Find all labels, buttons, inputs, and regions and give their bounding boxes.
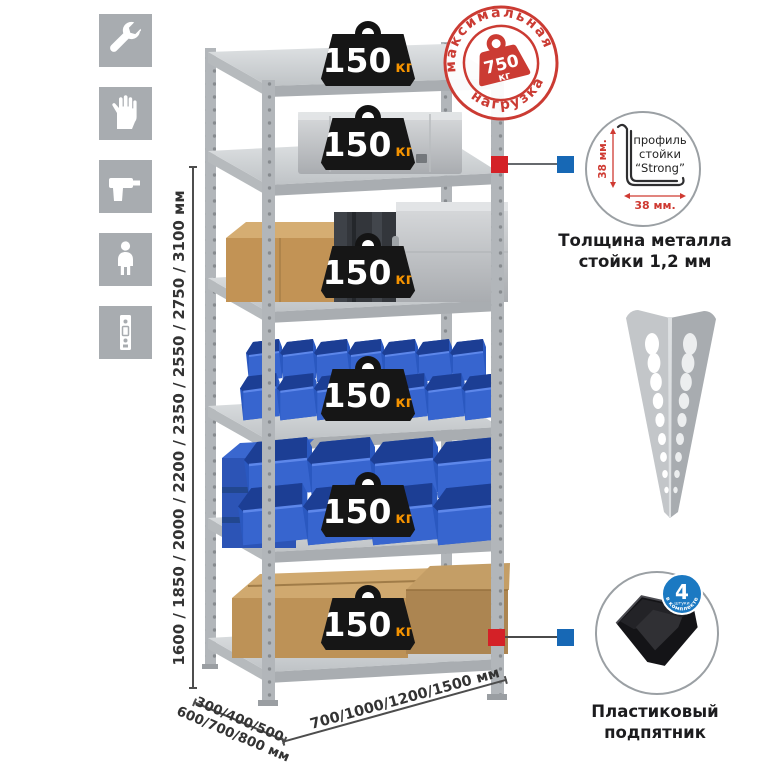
- post-profile-detail: 38 мм. 38 мм. профиль стойки “Strong”: [585, 111, 701, 227]
- height-dimension-label: 1600 / 1850 / 2000 / 2200 / 2350 / 2550 …: [170, 163, 188, 693]
- top-callout-line: [500, 163, 560, 165]
- wrench-tile: [99, 14, 152, 67]
- profile-label-1: профиль: [633, 133, 687, 147]
- drill-icon: [99, 160, 152, 213]
- shelf-load-weight-3: 150кг: [320, 233, 416, 298]
- badge-number: 4: [675, 580, 689, 604]
- top-callout-marker-blue: [557, 156, 574, 173]
- profile-label-2: стойки: [639, 147, 681, 161]
- top-post-marker-red: [491, 156, 508, 173]
- profile-caption: Толщина металла стойки 1,2 мм: [558, 231, 732, 272]
- shelf-load-weight-5: 150кг: [320, 472, 416, 537]
- bottom-post-marker-red: [488, 629, 505, 646]
- product-infographic: 1600 / 1850 / 2000 / 2200 / 2350 / 2550 …: [0, 0, 765, 765]
- gloves-tile: [99, 87, 152, 140]
- post-tile: [99, 306, 152, 359]
- post-profile-drawing: 38 мм. 38 мм. профиль стойки “Strong”: [587, 113, 699, 225]
- gloves-icon: [99, 87, 152, 140]
- person-icon: [99, 233, 152, 286]
- quantity-badge: 4 штуки в комплекте: [660, 572, 704, 616]
- drill-tile: [99, 160, 152, 213]
- shelf-load-weight-6: 150кг: [320, 585, 416, 650]
- person-tile: [99, 233, 152, 286]
- profile-dim-horizontal: 38 мм.: [634, 199, 675, 212]
- shelf-load-weight-2: 150кг: [320, 105, 416, 170]
- height-dimension-line: [192, 166, 194, 689]
- shelf-load-weight-1: 150кг: [320, 21, 416, 86]
- perforated-post-icon: [99, 306, 152, 359]
- profile-dim-vertical: 38 мм.: [597, 139, 609, 178]
- perforated-corner-post-image: [600, 302, 740, 530]
- wrench-icon: [99, 14, 152, 67]
- foot-caption: Пластиковый подпятник: [572, 702, 738, 743]
- bottom-callout-marker-blue: [557, 629, 574, 646]
- bottom-callout-line: [497, 636, 560, 638]
- profile-label-3: “Strong”: [635, 161, 685, 175]
- shelf-load-weight-4: 150кг: [320, 356, 416, 421]
